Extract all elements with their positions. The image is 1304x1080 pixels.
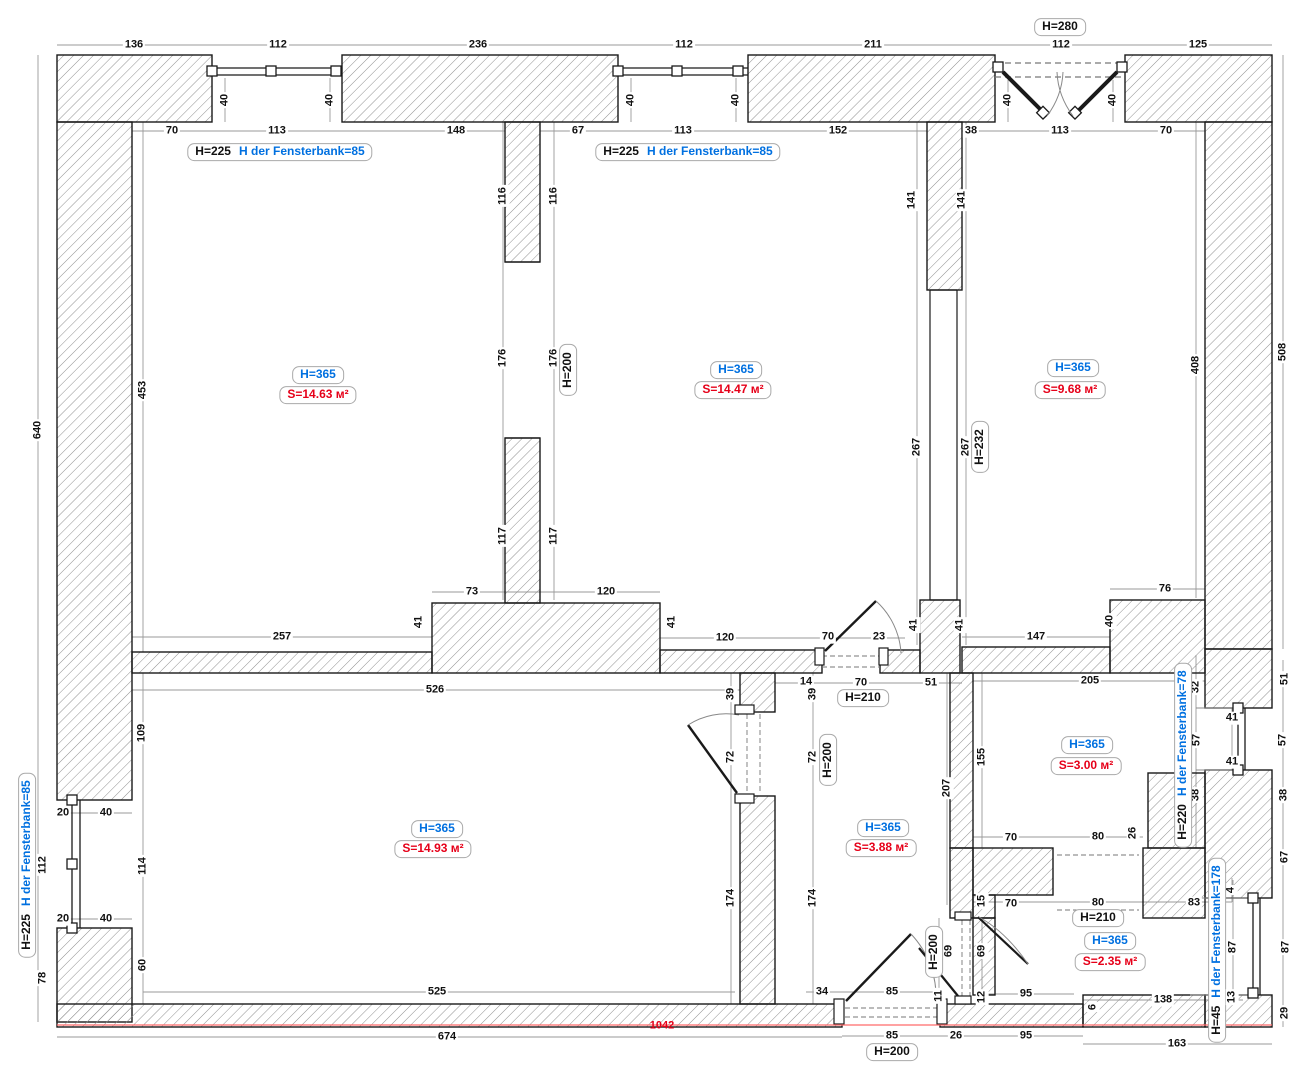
dimension-label: 114 xyxy=(137,855,150,877)
dimension-label: 26 xyxy=(948,1030,964,1043)
dimension-label: 113 xyxy=(672,125,694,138)
dimension-label: 113 xyxy=(266,125,288,138)
dimension-label: 70 xyxy=(1003,832,1019,845)
dimension-label: 69 xyxy=(976,943,989,959)
dimension-label: 109 xyxy=(136,722,149,744)
room-area-label: S=3.88 м² xyxy=(846,839,917,857)
dimension-label: 205 xyxy=(1079,675,1101,688)
dimension-label: 41 xyxy=(413,614,426,630)
dimension-label: 174 xyxy=(725,887,738,909)
dimension-label: 78 xyxy=(37,970,50,986)
dimension-label: 408 xyxy=(1190,354,1203,376)
dimension-label: 112 xyxy=(37,854,50,876)
dimension-label: 13 xyxy=(1226,989,1239,1005)
dimension-label: 152 xyxy=(827,125,849,138)
room-height-label: H=365 xyxy=(1061,736,1113,754)
dimension-labels-layer: 136112236112211112125H=28070113148671131… xyxy=(0,0,1304,1080)
dimension-label: 674 xyxy=(436,1031,458,1044)
dimension-label: 112 xyxy=(267,39,289,52)
dimension-label: 40 xyxy=(1002,92,1015,108)
dimension-label: 87 xyxy=(1280,939,1293,955)
dimension-label: 40 xyxy=(1107,92,1120,108)
dimension-label: 12 xyxy=(976,989,989,1005)
dimension-label: 67 xyxy=(570,125,586,138)
dimension-label: 41 xyxy=(908,617,921,633)
dimension-label: 525 xyxy=(426,986,448,999)
room-area-label: S=2.35 м² xyxy=(1075,953,1146,971)
room-area-label: S=14.63 м² xyxy=(279,386,356,404)
height-label: H=210 xyxy=(1072,909,1124,927)
dimension-label: 85 xyxy=(884,986,900,999)
floor-plan: 136112236112211112125H=28070113148671131… xyxy=(0,0,1304,1080)
dimension-label: 120 xyxy=(714,632,736,645)
window-height-label: H=225H der Fensterbank=85 xyxy=(595,143,780,161)
dimension-label: 125 xyxy=(1187,39,1209,52)
dimension-label: 257 xyxy=(271,631,293,644)
dimension-label: 148 xyxy=(445,125,467,138)
room-area-label: S=3.00 м² xyxy=(1051,757,1122,775)
dimension-label: 116 xyxy=(497,185,510,207)
dimension-label: 40 xyxy=(324,92,337,108)
overall-length-label: 1042 xyxy=(648,1020,676,1033)
dimension-label: 51 xyxy=(1279,671,1292,687)
dimension-label: 526 xyxy=(424,684,446,697)
window-height-label: H=225H der Fensterbank=85 xyxy=(187,143,372,161)
dimension-label: 6 xyxy=(1087,1002,1100,1012)
room-height-label: H=365 xyxy=(292,366,344,384)
dimension-label: 117 xyxy=(497,525,510,547)
dimension-label: 155 xyxy=(976,746,989,768)
dimension-label: 70 xyxy=(820,631,836,644)
height-label: H=280 xyxy=(1034,18,1086,36)
dimension-label: 40 xyxy=(98,807,114,820)
dimension-label: 29 xyxy=(1279,1005,1292,1021)
dimension-label: 39 xyxy=(725,686,738,702)
room-area-label: S=9.68 м² xyxy=(1035,381,1106,399)
dimension-label: 41 xyxy=(1224,712,1240,725)
dimension-label: 40 xyxy=(1104,613,1117,629)
dimension-label: 70 xyxy=(1158,125,1174,138)
dimension-label: 72 xyxy=(807,749,820,765)
room-area-label: S=14.93 м² xyxy=(394,840,471,858)
dimension-label: 40 xyxy=(625,92,638,108)
dimension-label: 267 xyxy=(911,436,924,458)
dimension-label: 26 xyxy=(1127,825,1140,841)
dimension-label: 70 xyxy=(164,125,180,138)
dimension-label: 80 xyxy=(1090,831,1106,844)
dimension-label: 141 xyxy=(906,189,919,211)
dimension-label: 57 xyxy=(1191,732,1204,748)
height-label: H=200 xyxy=(819,734,837,786)
dimension-label: 236 xyxy=(467,39,489,52)
dimension-label: 60 xyxy=(137,957,150,973)
dimension-label: 57 xyxy=(1277,732,1290,748)
window-height-label: H=45H der Fensterbank=178 xyxy=(1208,857,1226,1042)
room-height-label: H=365 xyxy=(857,819,909,837)
dimension-label: 40 xyxy=(730,92,743,108)
dimension-label: 83 xyxy=(1186,897,1202,910)
dimension-label: 40 xyxy=(98,913,114,926)
dimension-label: 141 xyxy=(956,189,969,211)
dimension-label: 70 xyxy=(853,677,869,690)
room-height-label: H=365 xyxy=(411,820,463,838)
dimension-label: 453 xyxy=(137,379,150,401)
dimension-label: 80 xyxy=(1090,897,1106,910)
dimension-label: 39 xyxy=(807,686,820,702)
dimension-label: 73 xyxy=(464,586,480,599)
dimension-label: 508 xyxy=(1277,341,1290,363)
dimension-label: 69 xyxy=(943,943,956,959)
dimension-label: 95 xyxy=(1018,1030,1034,1043)
height-label: H=200 xyxy=(866,1043,918,1061)
dimension-label: 41 xyxy=(666,614,679,630)
dimension-label: 163 xyxy=(1166,1038,1188,1051)
height-label: H=232 xyxy=(971,421,989,473)
dimension-label: 15 xyxy=(976,893,989,909)
dimension-label: 20 xyxy=(55,913,71,926)
dimension-label: 174 xyxy=(807,887,820,909)
dimension-label: 51 xyxy=(923,677,939,690)
dimension-label: 40 xyxy=(219,92,232,108)
dimension-label: 38 xyxy=(1278,787,1291,803)
dimension-label: 117 xyxy=(548,525,561,547)
dimension-label: 640 xyxy=(32,419,45,441)
dimension-label: 38 xyxy=(963,125,979,138)
dimension-label: 95 xyxy=(1018,988,1034,1001)
dimension-label: 120 xyxy=(595,586,617,599)
dimension-label: 138 xyxy=(1152,994,1174,1007)
room-height-label: H=365 xyxy=(1047,359,1099,377)
dimension-label: 211 xyxy=(862,39,884,52)
dimension-label: 41 xyxy=(1224,756,1240,769)
window-height-label: H=225H der Fensterbank=85 xyxy=(18,772,36,957)
dimension-label: 11 xyxy=(933,988,946,1004)
height-label: H=200 xyxy=(559,344,577,396)
dimension-label: 136 xyxy=(123,39,145,52)
dimension-label: 147 xyxy=(1025,631,1047,644)
height-label: H=200 xyxy=(925,926,943,978)
dimension-label: 67 xyxy=(1279,849,1292,865)
dimension-label: 23 xyxy=(871,631,887,644)
dimension-label: 76 xyxy=(1157,583,1173,596)
window-height-label: H=220H der Fensterbank=78 xyxy=(1174,662,1192,847)
dimension-label: 112 xyxy=(673,39,695,52)
dimension-label: 176 xyxy=(497,347,510,369)
dimension-label: 20 xyxy=(55,807,71,820)
height-label: H=210 xyxy=(837,689,889,707)
room-height-label: H=365 xyxy=(710,361,762,379)
dimension-label: 112 xyxy=(1050,39,1072,52)
room-area-label: S=14.47 м² xyxy=(694,381,771,399)
dimension-label: 207 xyxy=(941,777,954,799)
dimension-label: 85 xyxy=(884,1030,900,1043)
dimension-label: 4 xyxy=(1225,885,1238,895)
dimension-label: 34 xyxy=(814,986,830,999)
dimension-label: 72 xyxy=(725,749,738,765)
dimension-label: 116 xyxy=(548,185,561,207)
dimension-label: 41 xyxy=(954,617,967,633)
dimension-label: 70 xyxy=(1003,898,1019,911)
dimension-label: 113 xyxy=(1049,125,1071,138)
dimension-label: 87 xyxy=(1227,939,1240,955)
room-height-label: H=365 xyxy=(1084,932,1136,950)
